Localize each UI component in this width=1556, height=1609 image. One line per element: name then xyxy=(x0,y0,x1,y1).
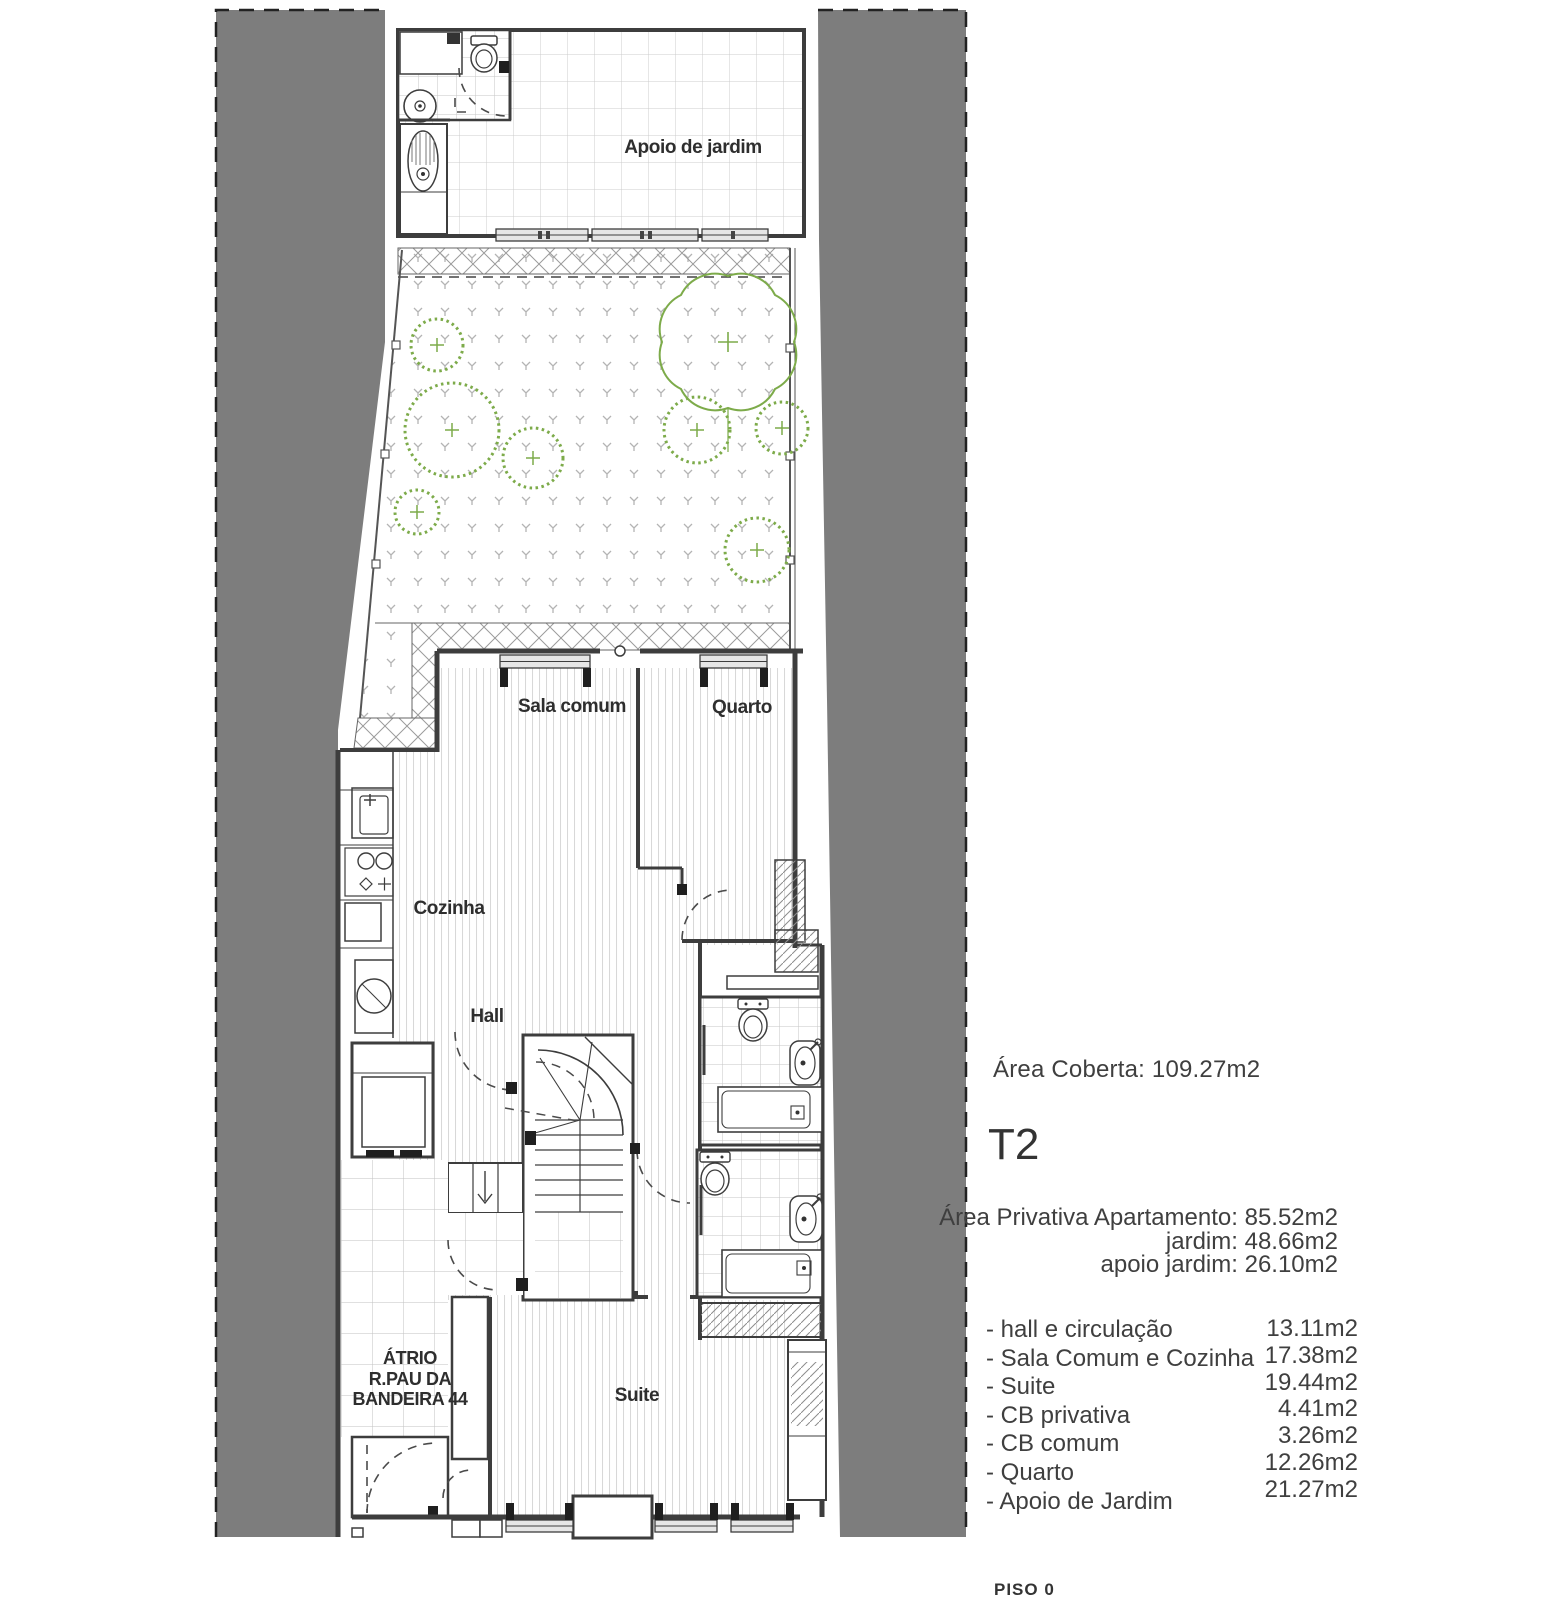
annex-windows xyxy=(496,229,768,241)
private-area-line: jardim: 48.66m2 xyxy=(900,1230,1338,1254)
neighbor-building-right xyxy=(818,10,966,1537)
area-row-value: 3.26m2 xyxy=(1265,1423,1358,1450)
covered-area-value: 109.27m2 xyxy=(1152,1056,1260,1083)
washbasin-icon xyxy=(790,1194,823,1242)
toilet-icon xyxy=(738,999,768,1041)
room-label-atrio: ÁTRIO R.PAU DA BANDEIRA 44 xyxy=(353,1348,468,1410)
stairs-side-steps xyxy=(448,1163,523,1213)
area-row-value: 19.44m2 xyxy=(1265,1370,1358,1397)
kitchen xyxy=(345,788,393,1033)
private-area-value: 26.10m2 xyxy=(1245,1251,1338,1278)
room-label-sala: Sala comum xyxy=(518,696,626,718)
elevator-shaft xyxy=(352,1043,433,1157)
covered-area-label: Área Coberta: xyxy=(993,1056,1145,1083)
room-areas-values: 13.11m2 17.38m2 19.44m2 4.41m2 3.26m2 12… xyxy=(1265,1316,1358,1504)
area-row-value: 21.27m2 xyxy=(1265,1477,1358,1504)
room-label-cozinha: Cozinha xyxy=(413,898,484,920)
floor-plan-page: Apoio de jardim Sala comum Quarto Cozinh… xyxy=(0,0,1556,1609)
kitchen-sink-icon xyxy=(352,788,393,838)
garden-annex xyxy=(398,30,804,241)
floor-level-label: PISO 0 xyxy=(994,1580,1055,1600)
private-area-label: apoio jardim: xyxy=(1101,1251,1238,1278)
room-label-suite: Suite xyxy=(615,1385,659,1407)
room-label-hall: Hall xyxy=(470,1006,503,1028)
bathroom-private xyxy=(697,1150,823,1297)
toilet-icon xyxy=(700,1152,730,1195)
room-label-apoio: Apoio de jardim xyxy=(624,137,762,159)
washbasin-icon xyxy=(404,90,436,122)
room-label-quarto: Quarto xyxy=(712,697,772,719)
area-row-value: 4.41m2 xyxy=(1265,1396,1358,1423)
atrio-line-1: ÁTRIO xyxy=(353,1348,468,1369)
annex-bathroom xyxy=(398,30,510,122)
washbasin-icon xyxy=(790,1039,821,1085)
toilet-icon xyxy=(471,36,497,72)
room-areas-table: - hall e circulação - Sala Comum e Cozin… xyxy=(986,1316,1358,1516)
unit-type-title: T2 xyxy=(988,1120,1039,1170)
atrio-line-2: R.PAU DA xyxy=(353,1369,468,1390)
private-areas-block: Área Privativa Apartamento: 85.52m2 jard… xyxy=(900,1206,1338,1277)
bathroom-common xyxy=(700,997,822,1145)
covered-area-line: Área Coberta: 109.27m2 xyxy=(993,1056,1260,1084)
private-area-line: Área Privativa Apartamento: 85.52m2 xyxy=(900,1206,1338,1230)
bathtub-icon xyxy=(718,1087,822,1132)
area-row-value: 12.26m2 xyxy=(1265,1450,1358,1477)
stove-icon xyxy=(345,848,393,896)
bathtub-icon xyxy=(400,124,447,234)
washing-machine-icon xyxy=(355,960,393,1033)
private-area-line: apoio jardim: 26.10m2 xyxy=(900,1253,1338,1277)
area-row-value: 13.11m2 xyxy=(1265,1316,1358,1343)
area-row-value: 17.38m2 xyxy=(1265,1343,1358,1370)
bathtub-icon xyxy=(722,1250,822,1297)
atrio-line-3: BANDEIRA 44 xyxy=(353,1389,468,1410)
